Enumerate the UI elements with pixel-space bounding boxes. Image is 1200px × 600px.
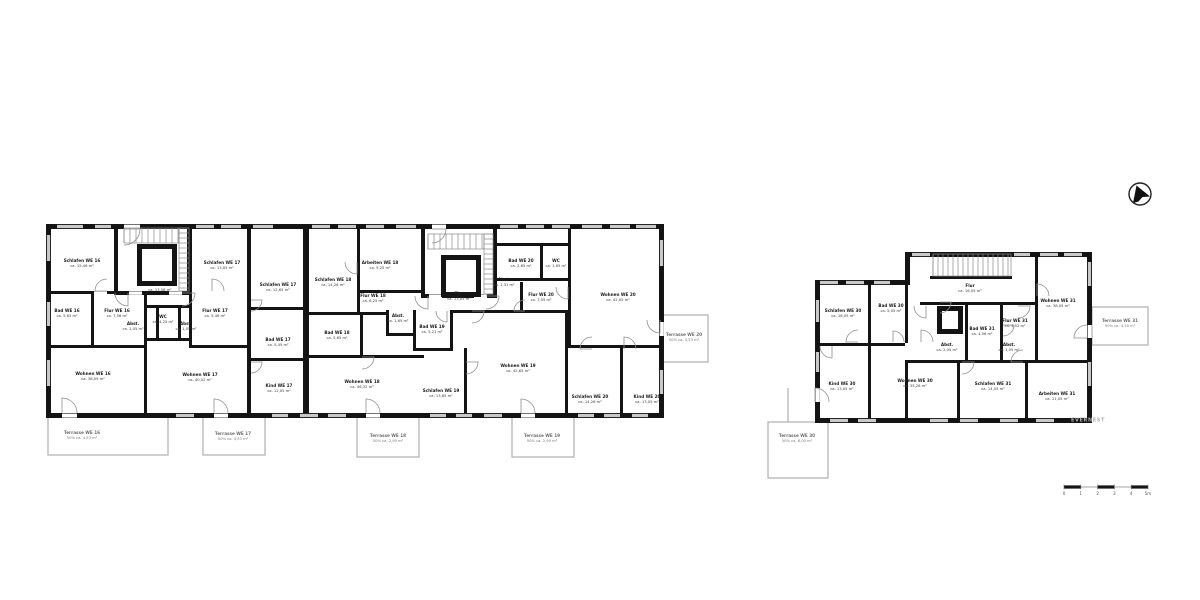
door-arc [514, 300, 525, 311]
room-label: Schlafen WE 19ca. 13,65 m² [423, 388, 460, 398]
door-opening [62, 414, 77, 418]
room-label: Abst.ca. 1,65 m² [387, 313, 409, 323]
window [816, 300, 819, 322]
window [610, 225, 630, 228]
room-label: Flur WE 17ca. 5,46 m² [202, 308, 228, 318]
window [1064, 253, 1082, 256]
wall [568, 345, 662, 348]
room-label: Flurca. 16,05 m² [958, 283, 982, 293]
door-arc [251, 362, 262, 373]
room-label: Bad WE 17ca. 5,45 m² [265, 337, 290, 347]
window [846, 281, 864, 284]
window [484, 414, 502, 417]
wall [413, 310, 416, 351]
window [912, 253, 930, 256]
door-arc [95, 279, 107, 291]
door-arc [820, 346, 832, 358]
wall [189, 345, 250, 348]
elevator-shafts-layer [137, 244, 963, 334]
window [582, 225, 602, 228]
window [1036, 419, 1054, 422]
window [196, 225, 214, 228]
elevator-car [446, 260, 477, 293]
scale-bar-segment [1131, 485, 1148, 488]
door-arc [893, 331, 904, 342]
wall [815, 343, 905, 346]
elevator-car [942, 311, 959, 330]
window [1014, 253, 1030, 256]
wall [493, 224, 497, 298]
terrace-label: Terrasse WE 1950% ca. 2,90 m² [524, 433, 560, 443]
door-arc [366, 399, 380, 413]
room-label: Bad WE 19ca. 5,21 m² [419, 324, 444, 334]
wall [144, 338, 192, 341]
scale-bar-segment [1098, 485, 1115, 488]
door-opening [429, 294, 442, 298]
wall [868, 345, 871, 418]
door-arc [436, 311, 447, 322]
window [552, 225, 570, 228]
floorplan-page: Schlafen WE 16ca. 15,46 m²Bad WE 16ca. 5… [0, 0, 1200, 600]
window [1088, 362, 1091, 386]
wall [46, 413, 664, 418]
room-label: Wohnen WE 18ca. 46,32 m² [344, 379, 379, 389]
wall [413, 348, 453, 351]
room-label: Flur WE 20ca. 7,05 m² [528, 292, 554, 302]
room-label: Flur WE 16ca. 7,56 m² [104, 308, 130, 318]
door-opening [129, 291, 142, 294]
room-label: Schlafen WE 30ca. 16,05 m² [825, 308, 862, 318]
wall [251, 358, 303, 361]
wall [187, 224, 192, 295]
window [47, 302, 50, 326]
wall [360, 312, 363, 358]
terrace-label: Terrasse WE 3150% ca. 4,30 m² [1102, 318, 1138, 328]
wall [114, 224, 118, 295]
wall [1025, 360, 1028, 418]
room-label: WCca. 4,25 m² [152, 314, 174, 324]
room-label: Wohnen WE 16ca. 38,09 m² [75, 371, 110, 381]
door-opening [213, 291, 225, 294]
window [1000, 419, 1018, 422]
door-arc [1018, 306, 1030, 318]
wall [497, 243, 570, 246]
terrace-label: Terrasse WE 1650% ca. 4,53 m² [64, 430, 100, 440]
window [930, 419, 948, 422]
terrace-outline [768, 422, 828, 478]
wall [957, 360, 960, 418]
wall [620, 348, 623, 413]
room-label: Bad WE 30ca. 5,05 m² [878, 303, 903, 313]
room-label: Arbeiten WE 31ca. 11,05 m² [1039, 391, 1076, 401]
window [396, 225, 416, 228]
wall [450, 310, 570, 313]
room-label: Schlafen WE 17ca. 12,65 m² [260, 282, 297, 292]
room-label: Bad WE 18ca. 5,65 m² [324, 330, 349, 340]
wall [520, 282, 523, 310]
door-opening [432, 225, 446, 229]
door-opening [816, 388, 820, 402]
wall [421, 224, 425, 298]
terrace-label: Terrasse WE 1750% ca. 4,53 m² [215, 431, 251, 441]
room-label: Abst.ca. 1,05 m² [122, 321, 144, 331]
room-label: Schlafen WE 31ca. 14,05 m² [975, 381, 1012, 391]
stair-flight [933, 254, 1011, 276]
room-label: Kind WE 17ca. 12,05 m² [266, 383, 293, 393]
elevator-car [142, 249, 173, 282]
watermark-text: EVERNEST [1071, 418, 1105, 424]
window [300, 414, 318, 417]
floorplan-drawing: Schlafen WE 16ca. 15,46 m²Bad WE 16ca. 5… [0, 0, 1200, 600]
window [526, 225, 544, 228]
window [636, 225, 656, 228]
wall [247, 224, 251, 414]
wall [568, 224, 571, 348]
wall [930, 276, 1012, 279]
window [960, 419, 978, 422]
wall [965, 302, 968, 360]
wall [464, 348, 467, 413]
window [47, 360, 50, 386]
room-label: Arbeiten WE 18ca. 9,25 m² [362, 260, 399, 270]
door-arc [846, 330, 858, 342]
door-opening [521, 414, 535, 418]
room-label: Schlafen WE 18ca. 14,26 m² [315, 277, 352, 287]
room-label: Bad WE 16ca. 5,65 m² [54, 308, 79, 318]
room-label: Abst.ca. 2,05 m² [936, 342, 958, 352]
door-arc [962, 362, 974, 374]
window [816, 352, 819, 372]
window [176, 414, 194, 417]
room-label: Bad WE 31ca. 4,56 m² [969, 326, 994, 336]
window [632, 414, 648, 417]
wall [868, 280, 871, 343]
scale-bar: 012345m [1063, 485, 1152, 496]
room-label: Wohnen WE 30ca. 35,26 m² [897, 378, 932, 388]
window [874, 281, 890, 284]
window [338, 225, 356, 228]
room-label: Schlafen WE 17ca. 13,05 m² [204, 260, 241, 270]
door-arc [921, 330, 933, 342]
north-arrow-icon [1129, 183, 1151, 205]
wall [386, 333, 414, 336]
door-opening [1088, 325, 1092, 338]
terrace-label: Terrasse WE 2050% ca. 4,53 m² [666, 332, 702, 342]
window [221, 225, 241, 228]
terrace-label: Terrasse WE 3050% ca. 8,00 m² [779, 433, 815, 443]
wall [905, 360, 908, 418]
room-label: Wohnen WE 19ca. 42,65 m² [500, 363, 535, 373]
room-label: Kind WE 20ca. 13,05 m² [634, 394, 661, 404]
window [830, 419, 848, 422]
window [1040, 253, 1058, 256]
window [272, 414, 288, 417]
scale-bar-tick-label: 0 [1063, 491, 1066, 496]
wall [540, 245, 543, 280]
window [312, 225, 330, 228]
room-label: Schlafen WE 16ca. 15,46 m² [64, 258, 101, 268]
room-label: Kind WE 30ca. 13,05 m² [829, 381, 856, 391]
wall [303, 224, 309, 418]
wall [450, 310, 453, 351]
door-arc [466, 362, 478, 374]
window [328, 414, 346, 417]
door-opening [214, 414, 228, 418]
scale-bar-tick-label: 1 [1080, 491, 1083, 496]
door-arc [1037, 284, 1049, 296]
wall [357, 224, 360, 312]
wall [565, 310, 568, 413]
door-arc [124, 229, 140, 245]
door-arc [521, 399, 535, 413]
door-arc [914, 306, 926, 318]
window [253, 225, 273, 228]
window [660, 370, 663, 394]
terrace-label: Terrasse WE 1850% ca. 2,90 m² [370, 433, 406, 443]
room-label: Wohnen WE 17ca. 40,02 m² [182, 372, 217, 382]
door-opening [169, 291, 182, 294]
room-label: Flur WE 18ca. 6,25 m² [360, 293, 386, 303]
window [858, 419, 876, 422]
door-arc [1074, 325, 1087, 338]
window [1088, 262, 1091, 286]
door-arc [62, 398, 77, 413]
scale-bar-segment [1064, 485, 1081, 488]
door-arc [556, 287, 568, 299]
door-arc [647, 320, 660, 333]
room-label: Wohnen WE 31ca. 38,05 m² [1040, 298, 1075, 308]
wall [905, 360, 1090, 363]
wall [309, 355, 424, 358]
room-label: Schlafen WE 20ca. 14,26 m² [572, 394, 609, 404]
window [820, 281, 838, 284]
window [578, 414, 594, 417]
door-arc [345, 262, 357, 274]
window [604, 414, 620, 417]
scale-bar-tick-label: 3 [1113, 491, 1116, 496]
window [500, 225, 518, 228]
wall [144, 291, 147, 416]
window [57, 225, 83, 228]
wall [91, 291, 94, 348]
wall [905, 280, 908, 343]
door-opening [366, 414, 380, 418]
room-label: Bad WE 20ca. 2,65 m² [508, 258, 533, 268]
scale-bar-tick-label: 2 [1096, 491, 1099, 496]
stair-flight [124, 228, 179, 243]
wall [46, 345, 146, 348]
window [366, 225, 384, 228]
door-arc [362, 357, 374, 369]
wall [1035, 252, 1038, 362]
window [430, 414, 446, 417]
window [95, 225, 111, 228]
door-opening [94, 291, 107, 294]
scale-bar-tick-label: 5m [1145, 491, 1152, 496]
door-arc [214, 399, 228, 413]
window [456, 414, 472, 417]
door-arc [212, 279, 224, 291]
room-label: Wohnen WE 20ca. 42,05 m² [600, 292, 635, 302]
scale-bar-tick-label: 4 [1130, 491, 1133, 496]
wall [309, 312, 389, 315]
room-label: WCca. 1,65 m² [545, 258, 567, 268]
wall [920, 302, 1038, 305]
room-label: Flur WE 31ca. 4,52 m² [1002, 318, 1028, 328]
window [660, 240, 663, 266]
stair-flight [428, 234, 484, 249]
window [47, 235, 50, 261]
